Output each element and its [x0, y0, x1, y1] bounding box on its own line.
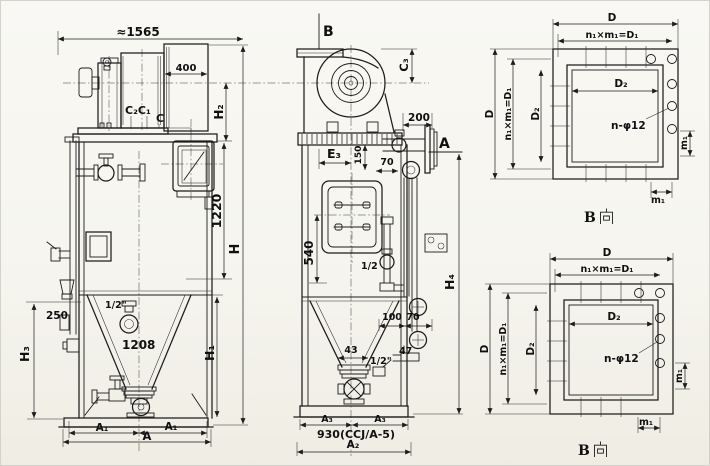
flange-view-bottom: D n₁×m₁=D₁ D₂ D n₁×m₁=D₁ D₂ n-φ12 m₁ m₁ … [479, 247, 690, 459]
xiang-character [595, 442, 607, 457]
view-label: B [578, 442, 607, 459]
dim-m1-right: m₁ [674, 369, 685, 383]
front-drain-size: 1/2" [105, 300, 127, 311]
dim-e3: E₃ [327, 146, 341, 161]
dim-a3-right: A₃ [374, 414, 386, 425]
section-a: A [439, 136, 450, 152]
dim-70-bottom: 70 [406, 312, 420, 323]
engineering-drawing-sheet: ≈1565 400 C₂C₁ C [0, 0, 710, 466]
dim-540: 540 [302, 240, 316, 265]
label-c: C [156, 112, 164, 125]
view-label-b: B [578, 443, 590, 459]
dim-a2: A₂ [347, 439, 360, 451]
bolt-holes-label: n-φ12 [604, 353, 639, 365]
dim-h3: H₃ [17, 346, 32, 362]
valve-size-mid: 1/2 [361, 261, 378, 272]
label-c2c1: C₂C₁ [125, 104, 151, 117]
side-access-door [314, 173, 390, 263]
dim-1220: 1220 [209, 193, 224, 228]
bolt-pitch-top: n₁×m₁=D₁ [581, 264, 634, 275]
dim-d-left: D [484, 109, 496, 118]
mid-valve-pipe [380, 217, 403, 291]
dim-a3-left: A₃ [321, 414, 333, 425]
bolt-holes [647, 55, 677, 134]
dim-a1-right: A₁ [165, 421, 178, 433]
dim-overall-width: ≈1565 [116, 25, 159, 39]
dim-h1: H₁ [202, 345, 217, 361]
dim-150: 150 [354, 146, 364, 165]
front-access-door [173, 141, 214, 209]
dim-a: A [143, 429, 152, 443]
dim-h: H [228, 244, 243, 255]
dim-a1-left: A₁ [96, 422, 109, 434]
fan-scroll [297, 49, 394, 132]
dim-d-top: D [603, 247, 612, 259]
dim-d2-v: D₂ [530, 107, 542, 121]
view-label-b: B [584, 210, 596, 226]
dim-43: 43 [344, 345, 357, 356]
view-label: B [584, 209, 613, 226]
bolt-pitch-left: n₁×m₁=D₁ [498, 323, 509, 376]
dim-h4: H₄ [442, 274, 457, 290]
front-view: ≈1565 400 C₂C₁ C [17, 25, 429, 451]
flange-view-top: D n₁×m₁=D₁ D₂ D n₁×m₁=D₁ D₂ n-φ12 m₁ m₁ … [484, 12, 695, 226]
dim-200: 200 [408, 112, 430, 124]
front-hopper [85, 295, 206, 415]
motor-blower-assembly [79, 44, 208, 131]
outlet-diameter: 1208 [122, 338, 155, 352]
dim-m1-bottom: m₁ [651, 195, 665, 206]
xiang-character [601, 209, 613, 224]
dim-d2-h: D₂ [607, 311, 621, 323]
side-view: B C₃ [294, 14, 463, 456]
bolt-pitch-top: n₁×m₁=D₁ [586, 30, 639, 41]
dim-47: 47 [399, 346, 412, 357]
dim-motor-box-width: 400 [176, 63, 197, 74]
bolt-holes-label: n-φ12 [611, 120, 646, 132]
dust-collector-drawing: ≈1565 400 C₂C₁ C [1, 1, 710, 466]
dim-70-top: 70 [380, 157, 394, 168]
dim-m1-right: m₁ [679, 136, 690, 150]
dim-d-top: D [608, 12, 617, 24]
dim-m1-bottom: m₁ [639, 417, 653, 428]
dim-c3: C₃ [397, 58, 411, 71]
valve-size-bottom: 1/2" [370, 356, 392, 367]
dim-d-left: D [479, 344, 491, 353]
view-arrow-b: B [323, 24, 334, 40]
sight-glass [86, 232, 111, 261]
dim-d2-v: D₂ [525, 342, 537, 356]
dim-250: 250 [46, 310, 68, 322]
dim-h2: H₂ [212, 104, 226, 119]
dim-100: 100 [382, 312, 402, 323]
bolt-pitch-left: n₁×m₁=D₁ [503, 88, 514, 141]
dim-d2-h: D₂ [614, 78, 628, 90]
